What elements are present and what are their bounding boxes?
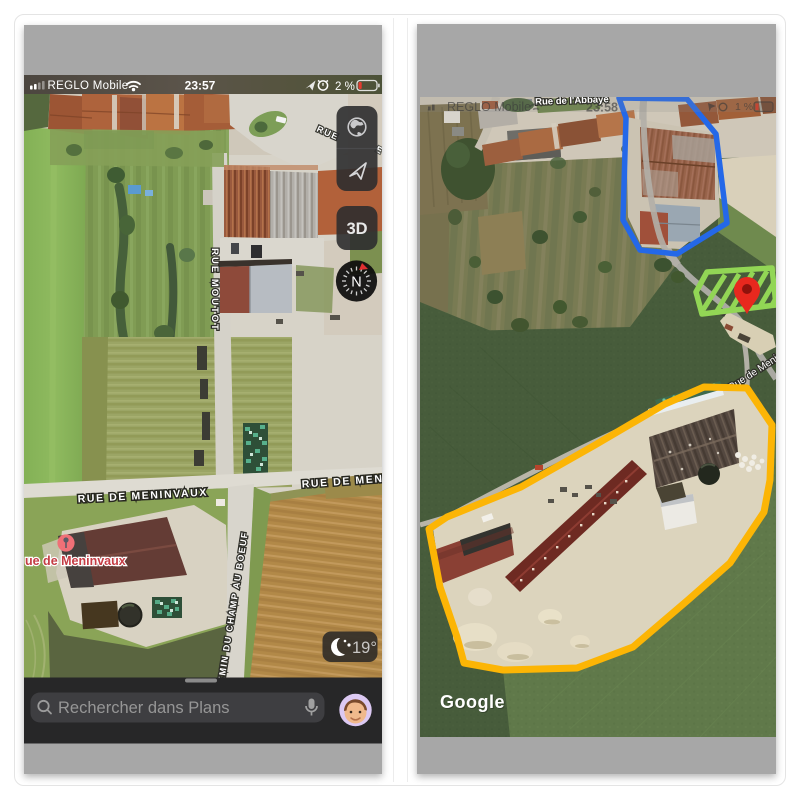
- svg-text:REGLO Mobile: REGLO Mobile: [447, 100, 531, 114]
- svg-text:19°: 19°: [352, 639, 377, 657]
- svg-text:ue de Meninvaux: ue de Meninvaux: [25, 554, 126, 568]
- svg-text:RUE MOUTOT: RUE MOUTOT: [209, 248, 220, 332]
- svg-text:Rechercher dans Plans: Rechercher dans Plans: [58, 699, 230, 717]
- svg-text:2 %: 2 %: [335, 81, 355, 93]
- svg-text:REGLO Mobile: REGLO Mobile: [48, 80, 129, 92]
- svg-text:23:57: 23:57: [185, 79, 216, 93]
- svg-text:Google: Google: [440, 692, 505, 712]
- svg-text:23:58: 23:58: [586, 101, 618, 115]
- svg-text:3D: 3D: [346, 220, 367, 238]
- svg-text:1 %: 1 %: [735, 101, 753, 113]
- svg-text:N: N: [351, 275, 361, 291]
